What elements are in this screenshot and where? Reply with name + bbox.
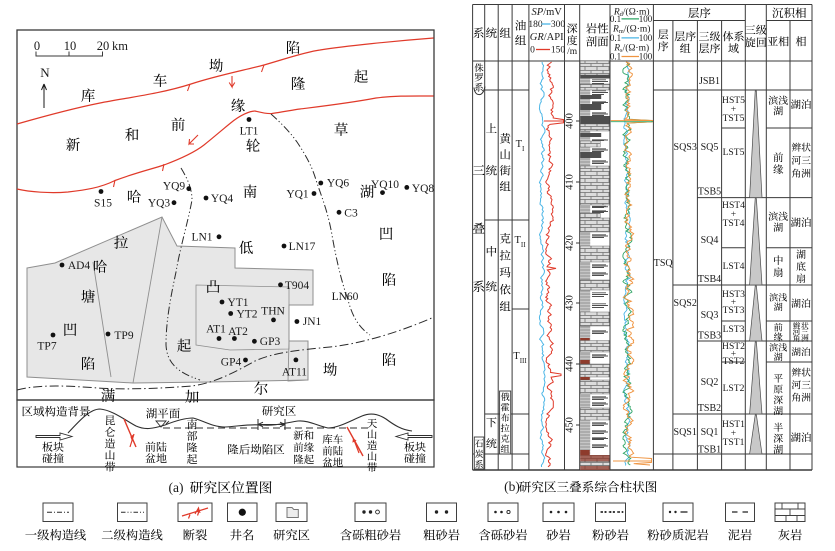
svg-text:N: N xyxy=(40,65,50,80)
svg-text:SQ4: SQ4 xyxy=(701,235,719,246)
svg-text:GP3: GP3 xyxy=(260,336,281,348)
svg-text:GP4: GP4 xyxy=(221,357,242,369)
svg-text:SQ1: SQ1 xyxy=(701,427,719,438)
svg-text:TSB2: TSB2 xyxy=(698,403,721,414)
svg-text:0: 0 xyxy=(34,39,40,53)
svg-text:TSB3: TSB3 xyxy=(698,331,721,342)
svg-text:SQ5: SQ5 xyxy=(701,142,719,153)
svg-text:AT11: AT11 xyxy=(282,367,307,379)
svg-text:JSB1: JSB1 xyxy=(699,76,720,87)
svg-text:TSB1: TSB1 xyxy=(698,445,721,456)
svg-text:GR/API: GR/API xyxy=(530,32,564,43)
svg-text:JN1: JN1 xyxy=(303,316,322,328)
svg-text:T904: T904 xyxy=(285,280,310,292)
svg-text:SQS1: SQS1 xyxy=(674,427,697,438)
svg-text:TST5: TST5 xyxy=(723,113,745,124)
svg-text:TST4: TST4 xyxy=(723,218,745,229)
svg-text:300: 300 xyxy=(551,20,566,30)
svg-text:LT1: LT1 xyxy=(240,126,259,138)
svg-text:TSQ: TSQ xyxy=(654,258,674,269)
svg-text:/m: /m xyxy=(567,47,578,57)
svg-text:LN60: LN60 xyxy=(332,291,359,303)
svg-text:0: 0 xyxy=(530,46,535,56)
svg-text:0.1: 0.1 xyxy=(610,14,621,24)
svg-text:LN17: LN17 xyxy=(289,241,316,253)
svg-text:20: 20 xyxy=(97,39,110,53)
svg-text:YT2: YT2 xyxy=(236,309,257,321)
svg-text:TP9: TP9 xyxy=(114,330,133,342)
svg-text:LN1: LN1 xyxy=(191,232,212,244)
svg-text:LST2: LST2 xyxy=(723,383,745,394)
svg-text:150: 150 xyxy=(551,46,566,56)
svg-text:100: 100 xyxy=(639,52,653,62)
svg-text:SQS3: SQS3 xyxy=(674,142,697,153)
svg-text:10: 10 xyxy=(64,39,77,53)
svg-text:YQ4: YQ4 xyxy=(211,193,234,205)
svg-text:C3: C3 xyxy=(344,208,358,220)
svg-text:0.1: 0.1 xyxy=(610,33,621,43)
svg-text:100: 100 xyxy=(639,33,653,43)
svg-text:0.1: 0.1 xyxy=(610,52,621,62)
svg-text:km: km xyxy=(112,39,128,53)
svg-text:TSB5: TSB5 xyxy=(698,187,721,198)
svg-text:(b): (b) xyxy=(504,479,520,494)
svg-text:SQ3: SQ3 xyxy=(701,310,719,321)
svg-text:AT2: AT2 xyxy=(228,326,248,338)
svg-text:LST5: LST5 xyxy=(723,147,745,158)
svg-text:420: 420 xyxy=(565,235,576,251)
svg-text:YQ9: YQ9 xyxy=(163,181,186,193)
svg-text:TSB4: TSB4 xyxy=(698,274,721,285)
svg-text:TP7: TP7 xyxy=(37,341,56,353)
svg-text:YQ8: YQ8 xyxy=(412,183,435,195)
svg-text:TST2: TST2 xyxy=(723,356,745,367)
svg-text:AT1: AT1 xyxy=(206,324,226,336)
svg-text:AD4: AD4 xyxy=(68,260,91,272)
svg-text:LST3: LST3 xyxy=(723,324,745,335)
svg-text:(a): (a) xyxy=(169,480,184,495)
svg-text:SQS2: SQS2 xyxy=(674,298,697,309)
svg-text:180: 180 xyxy=(528,20,543,30)
svg-text:YT1: YT1 xyxy=(227,297,248,309)
svg-text:YQ1: YQ1 xyxy=(286,189,309,201)
svg-text:YQ3: YQ3 xyxy=(148,198,171,210)
svg-text:440: 440 xyxy=(565,356,576,372)
svg-text:S15: S15 xyxy=(94,198,112,210)
svg-text:100: 100 xyxy=(639,14,653,24)
svg-text:THN: THN xyxy=(261,306,285,318)
svg-text:LST4: LST4 xyxy=(723,261,745,272)
svg-text:450: 450 xyxy=(565,417,576,433)
svg-text:SQ2: SQ2 xyxy=(701,377,719,388)
svg-text:400: 400 xyxy=(565,113,576,129)
svg-text:410: 410 xyxy=(565,174,576,190)
svg-text:YQ10: YQ10 xyxy=(371,179,399,191)
svg-text:YQ6: YQ6 xyxy=(327,178,350,190)
svg-text:SP/mV: SP/mV xyxy=(532,7,563,18)
svg-text:430: 430 xyxy=(565,295,576,311)
svg-text:TST3: TST3 xyxy=(723,305,745,316)
svg-text:TST1: TST1 xyxy=(723,437,745,448)
